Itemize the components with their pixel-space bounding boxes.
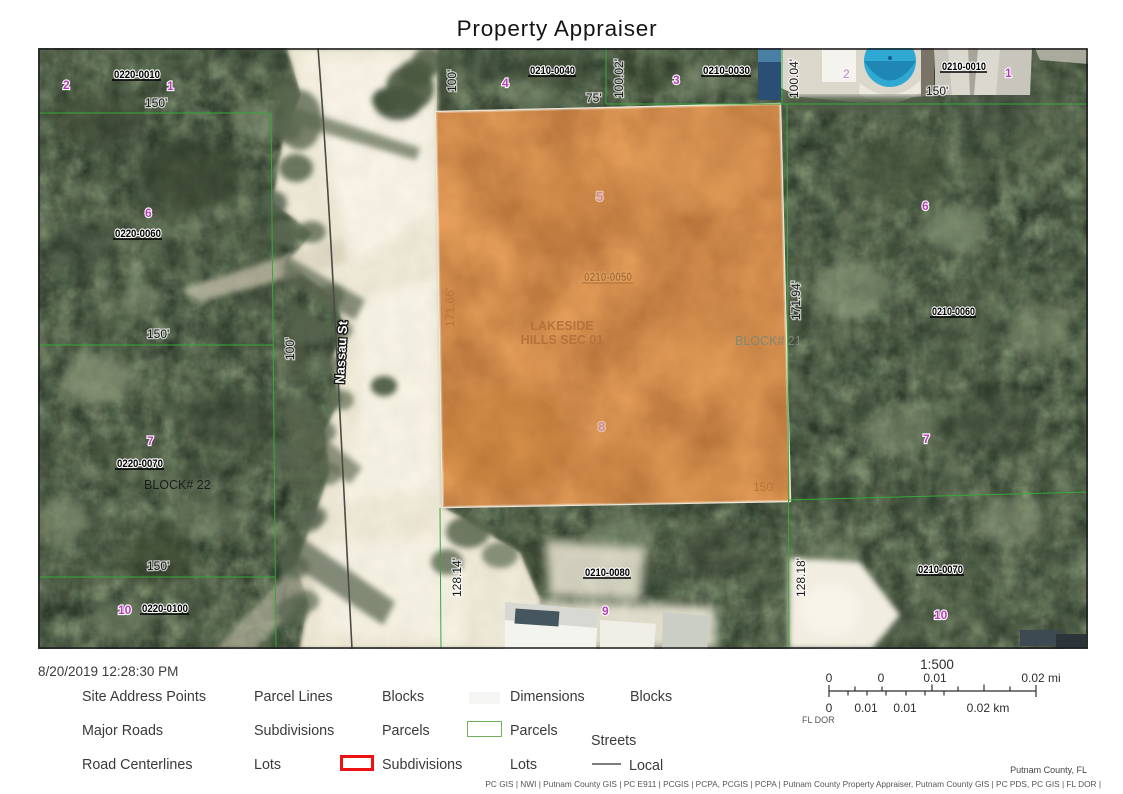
svg-text:6: 6 [145, 206, 152, 220]
svg-text:0: 0 [826, 701, 833, 715]
svg-text:150': 150' [147, 327, 169, 341]
svg-text:0210-0040: 0210-0040 [530, 65, 575, 77]
svg-text:7: 7 [923, 432, 930, 446]
svg-text:10: 10 [118, 603, 132, 617]
svg-text:75': 75' [586, 91, 602, 105]
svg-text:150': 150' [926, 84, 948, 98]
svg-text:0210-0010: 0210-0010 [942, 61, 986, 73]
svg-text:100': 100' [445, 70, 459, 92]
svg-text:0210-0050: 0210-0050 [584, 270, 632, 284]
svg-text:0220-0100: 0220-0100 [142, 603, 188, 615]
svg-text:0210-0080: 0210-0080 [585, 567, 630, 579]
svg-text:0220-0060: 0220-0060 [115, 228, 161, 240]
svg-text:4: 4 [502, 76, 509, 90]
svg-text:128.14': 128.14' [450, 558, 464, 597]
svg-text:100.04': 100.04' [787, 59, 801, 98]
svg-text:1: 1 [1005, 66, 1012, 80]
svg-text:100': 100' [283, 338, 297, 360]
svg-text:150': 150' [145, 96, 167, 110]
svg-text:100.02': 100.02' [612, 59, 626, 98]
svg-text:0.01: 0.01 [923, 671, 947, 685]
svg-text:0210-0070: 0210-0070 [918, 564, 963, 576]
svg-text:LAKESIDE: LAKESIDE [530, 319, 593, 333]
svg-text:1: 1 [167, 79, 174, 93]
svg-text:BLOCK# 21: BLOCK# 21 [735, 334, 802, 348]
svg-text:0.01: 0.01 [854, 701, 878, 715]
svg-text:0: 0 [878, 671, 885, 685]
svg-text:10: 10 [934, 608, 948, 622]
svg-text:6: 6 [922, 199, 929, 213]
svg-text:5: 5 [596, 189, 603, 204]
svg-text:0.01: 0.01 [893, 701, 917, 715]
svg-text:7: 7 [147, 434, 154, 448]
svg-text:150': 150' [147, 559, 169, 573]
svg-text:3: 3 [673, 73, 680, 87]
svg-text:0.02 km: 0.02 km [967, 701, 1010, 715]
svg-text:150': 150' [753, 480, 775, 494]
svg-text:0220-0070: 0220-0070 [117, 458, 163, 470]
svg-text:0.02 mi: 0.02 mi [1021, 671, 1060, 685]
svg-text:0220-0010: 0220-0010 [114, 69, 160, 81]
svg-text:2: 2 [63, 78, 70, 92]
svg-text:0210-0030: 0210-0030 [703, 65, 750, 77]
svg-text:171.66': 171.66' [443, 288, 457, 327]
svg-text:1:500: 1:500 [920, 657, 954, 672]
svg-text:8: 8 [598, 419, 605, 434]
svg-text:0: 0 [826, 671, 833, 685]
svg-text:HILLS SEC 01: HILLS SEC 01 [521, 333, 604, 347]
svg-text:BLOCK# 22: BLOCK# 22 [144, 478, 211, 492]
svg-text:128.18': 128.18' [794, 558, 808, 597]
svg-text:0210-0060: 0210-0060 [932, 306, 975, 318]
svg-text:9: 9 [602, 604, 609, 618]
svg-text:2: 2 [843, 67, 850, 81]
svg-text:171.94': 171.94' [789, 281, 803, 320]
